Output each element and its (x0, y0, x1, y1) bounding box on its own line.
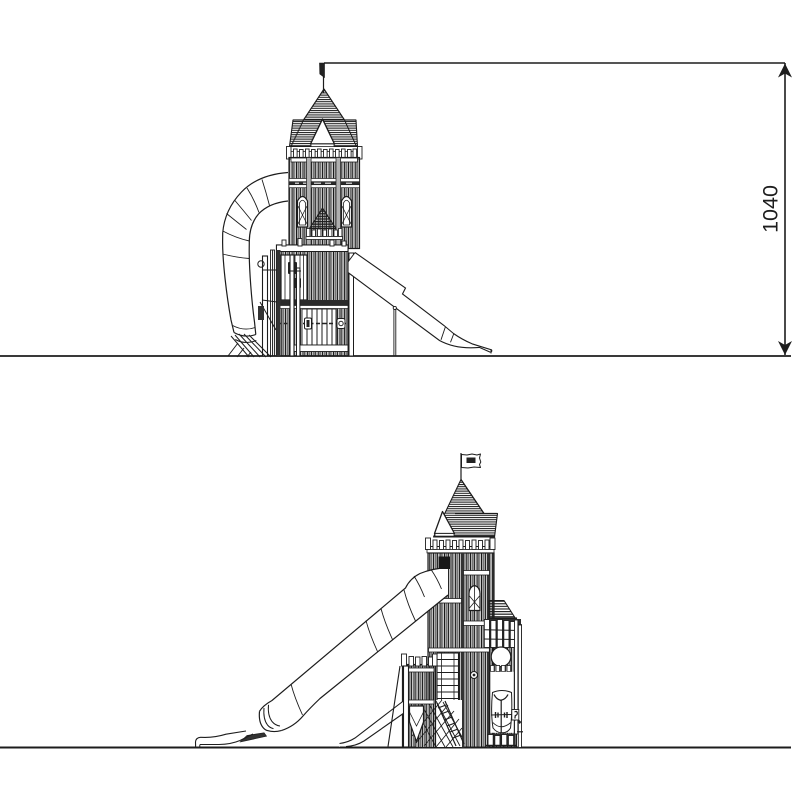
svg-text:1040: 1040 (759, 185, 783, 233)
